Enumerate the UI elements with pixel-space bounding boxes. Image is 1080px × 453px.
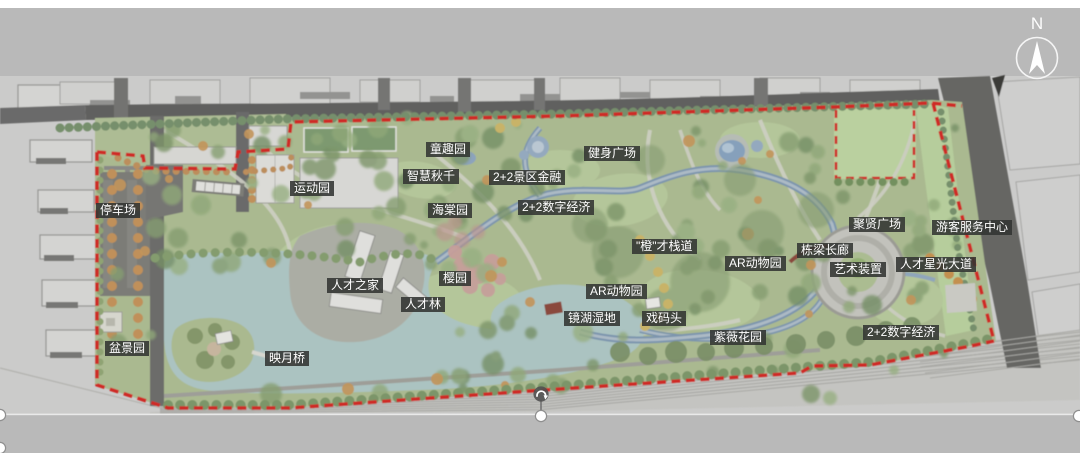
svg-text:N: N [1031, 14, 1043, 33]
